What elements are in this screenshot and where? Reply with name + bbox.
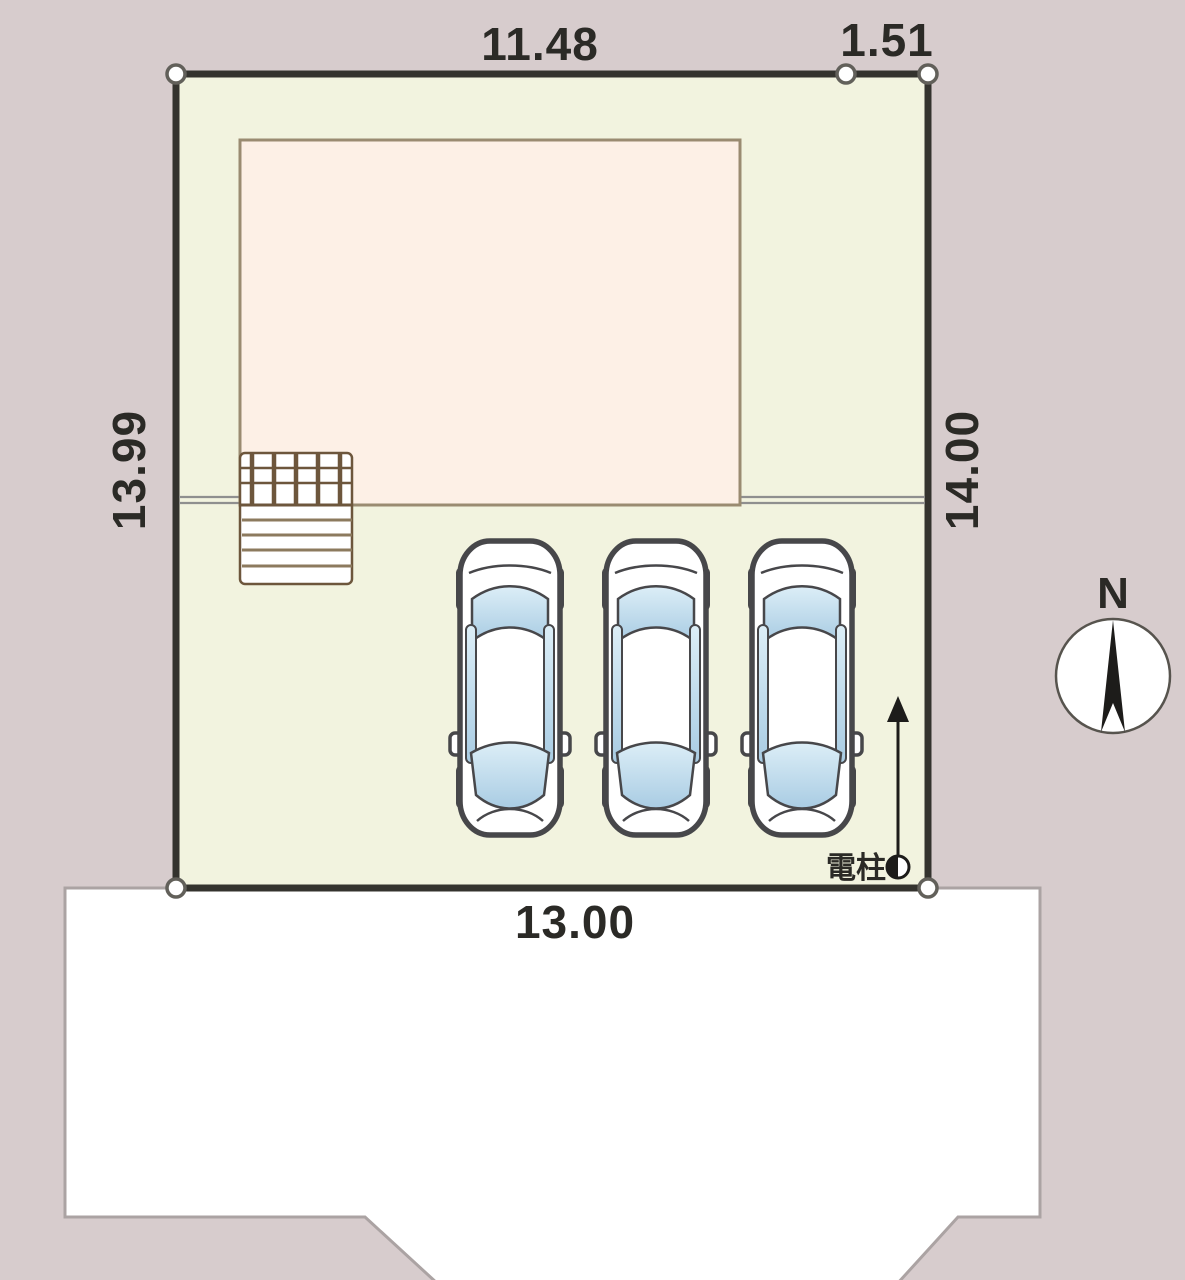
dimension-top: 11.48 xyxy=(481,18,599,70)
utility-pole-symbol xyxy=(887,856,909,878)
site-plan-drawing: 電柱 N 11.48 1.51 13.99 14.00 13.00 xyxy=(0,0,1185,1280)
building-footprint xyxy=(240,140,740,505)
car-1 xyxy=(450,541,570,835)
north-label: N xyxy=(1097,569,1129,618)
boundary-point-bottom-right xyxy=(919,879,937,897)
site-plan-canvas: 電柱 N 11.48 1.51 13.99 14.00 13.00 xyxy=(0,0,1185,1280)
car-3 xyxy=(742,541,862,835)
boundary-point-top-right xyxy=(919,65,937,83)
car-2 xyxy=(596,541,716,835)
utility-pole-label: 電柱 xyxy=(826,852,886,885)
boundary-point-top-mid xyxy=(837,65,855,83)
boundary-point-top-left xyxy=(167,65,185,83)
dimension-left: 13.99 xyxy=(103,410,155,530)
dimension-right: 14.00 xyxy=(936,410,988,530)
dimension-bottom: 13.00 xyxy=(515,896,635,948)
boundary-point-bottom-left xyxy=(167,879,185,897)
dimension-top-right: 1.51 xyxy=(840,14,934,66)
porch-steps xyxy=(240,453,352,584)
